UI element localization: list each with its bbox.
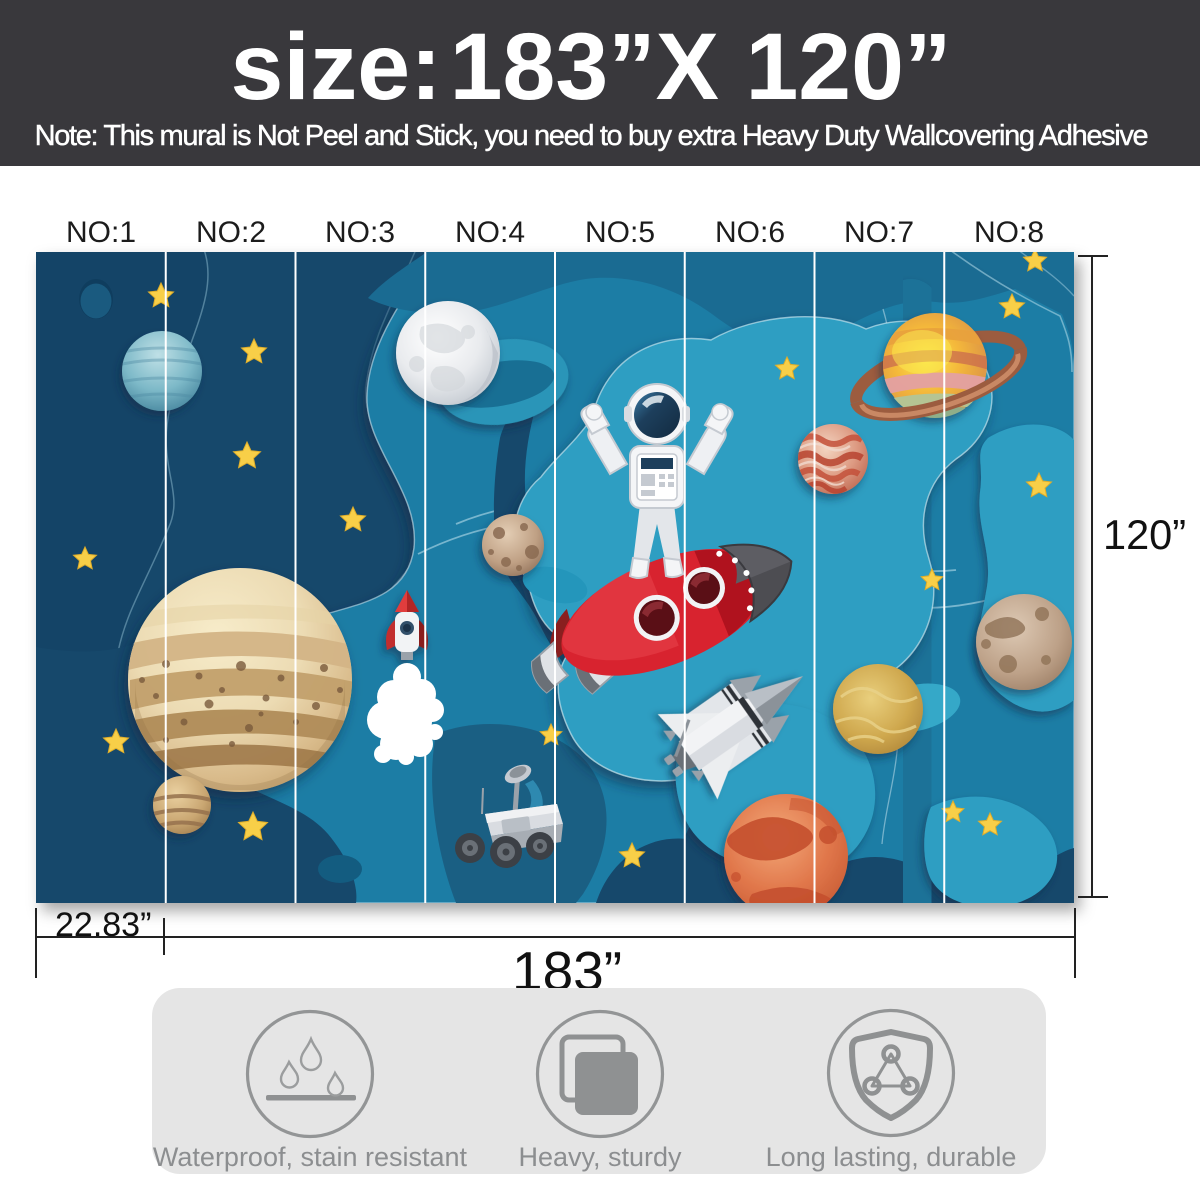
svg-text:120”: 120” (1103, 511, 1186, 558)
svg-text:22.83”: 22.83” (55, 906, 151, 944)
